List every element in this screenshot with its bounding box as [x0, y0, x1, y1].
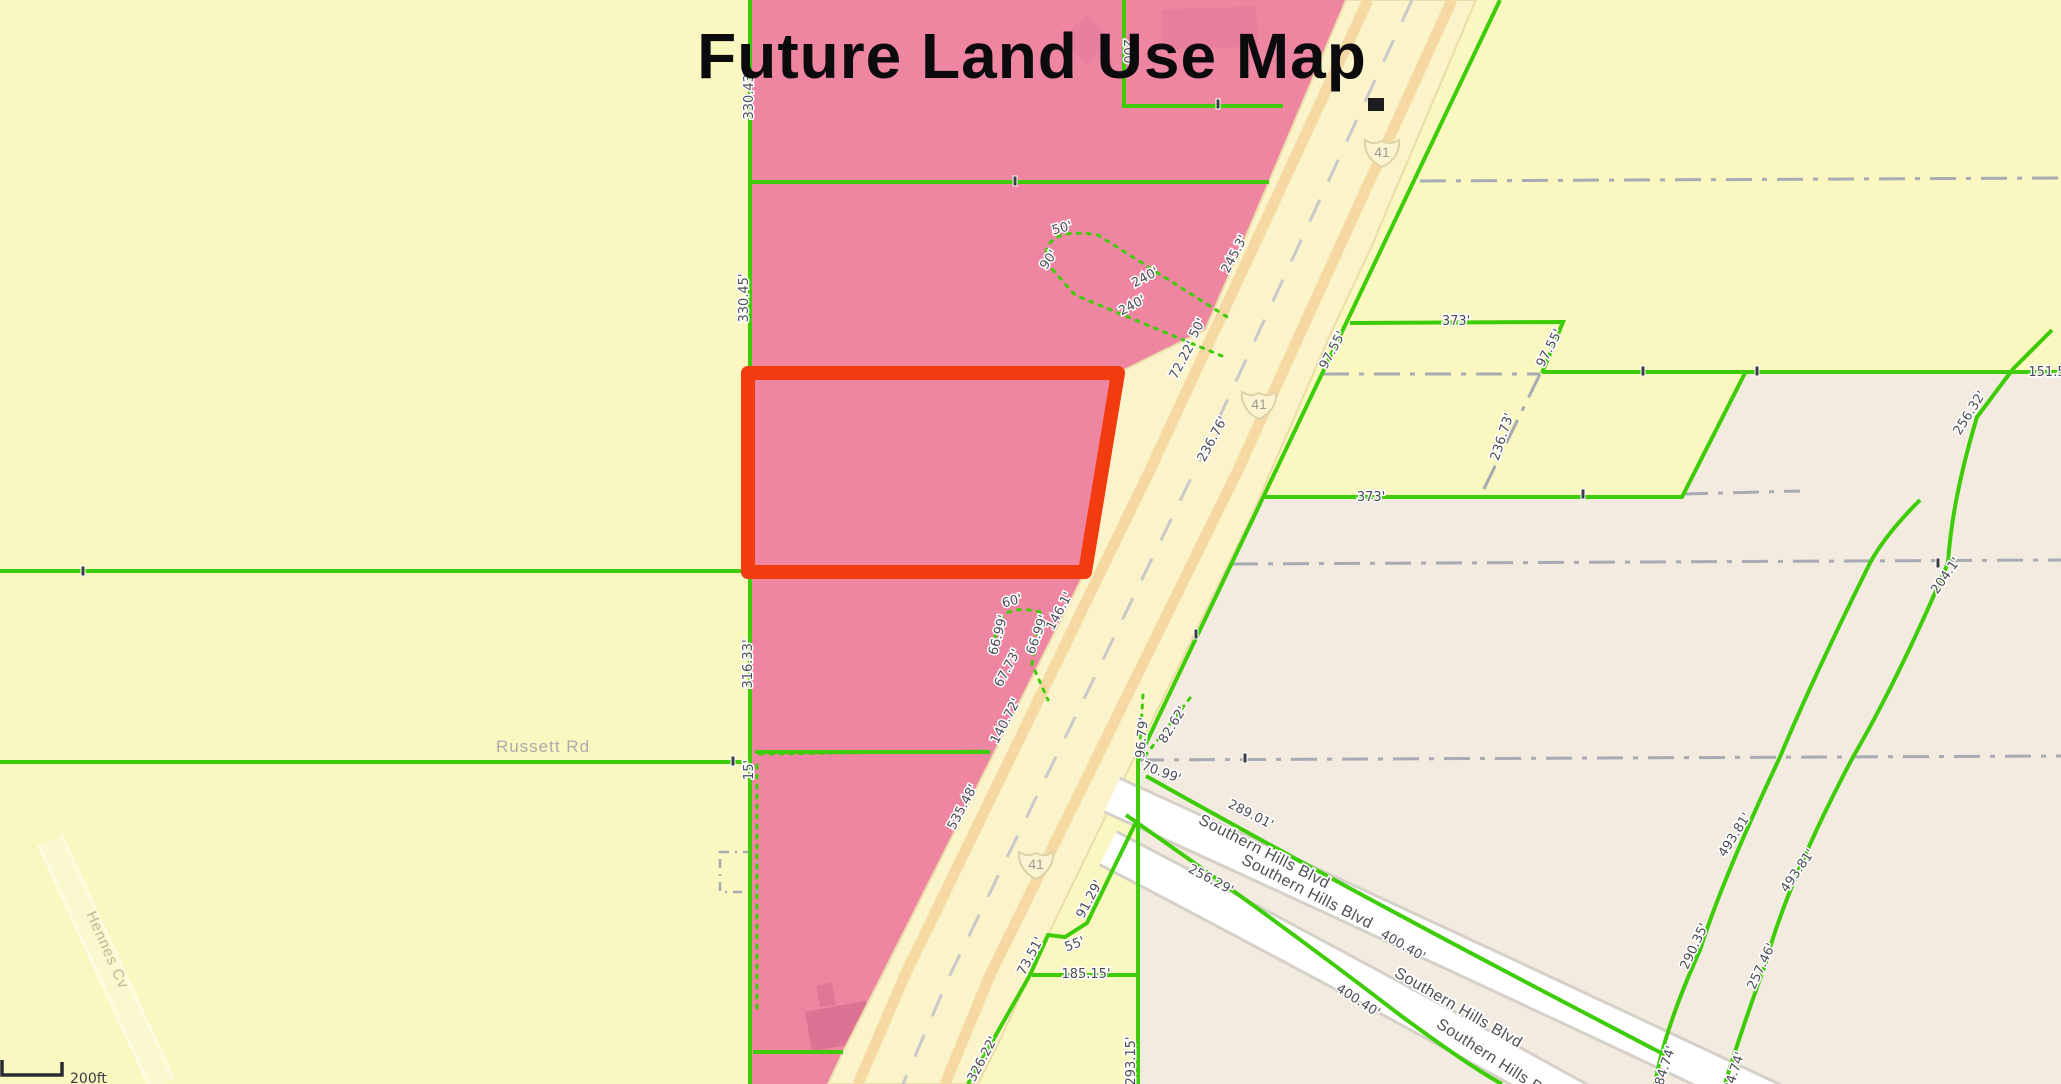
tick-mark	[731, 756, 735, 766]
shield-number: 41	[1251, 396, 1267, 412]
dim-label: 15'	[742, 760, 757, 780]
street-label-russett-rd: Russett Rd	[496, 737, 590, 756]
dim-label: 330.45'	[737, 273, 752, 322]
tick-mark	[1013, 176, 1017, 186]
map-canvas: 41 41 41 330.43' 330.45' 316.33' 15' 200…	[0, 0, 2061, 1084]
shield-number: 41	[1374, 144, 1390, 160]
tick-mark	[1194, 629, 1198, 639]
scale-bar-label: 200ft	[70, 1071, 107, 1084]
dim-label: 316.33'	[741, 639, 756, 688]
dim-label: 151.5	[2028, 365, 2061, 380]
future-land-use-map: 41 41 41 330.43' 330.45' 316.33' 15' 200…	[0, 0, 2061, 1084]
dim-label: 293.15'	[1124, 1036, 1139, 1084]
tick-mark	[1581, 489, 1585, 499]
tick-mark	[1641, 366, 1645, 376]
tick-mark	[1216, 99, 1220, 109]
building-footprint	[1368, 98, 1384, 111]
shield-number: 41	[1028, 856, 1044, 872]
tick-mark	[1243, 753, 1247, 763]
tick-mark	[1936, 558, 1940, 568]
dim-label: 373'	[1442, 314, 1470, 329]
tick-mark	[81, 566, 85, 576]
page-title: Future Land Use Map	[697, 20, 1367, 92]
tick-mark	[1755, 366, 1759, 376]
dim-label: 185.15'	[1061, 967, 1110, 982]
dim-label: 373'	[1357, 490, 1385, 505]
